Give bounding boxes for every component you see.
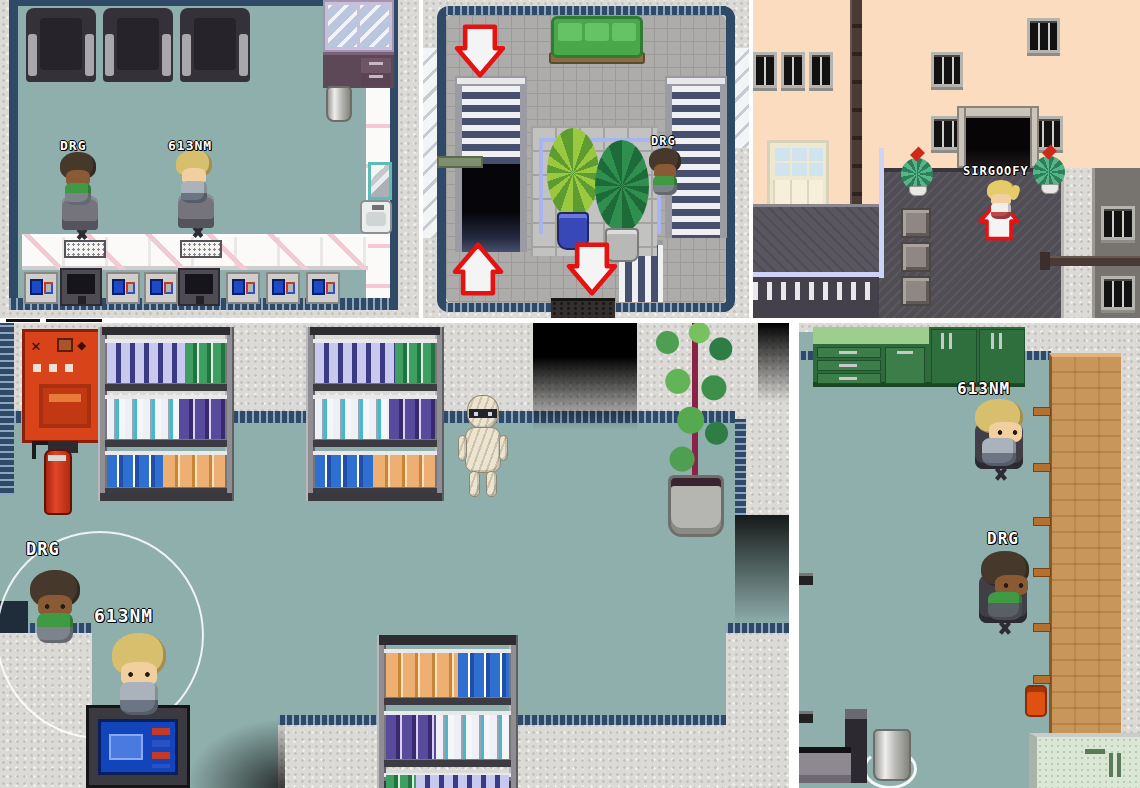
books (386, 775, 416, 788)
player-sirgoofy[interactable] (987, 180, 1015, 220)
doorway[interactable] (966, 118, 1030, 170)
armchair-3 (180, 8, 250, 82)
wall-border (9, 0, 18, 310)
shelf-row (384, 711, 511, 767)
appliance (1029, 733, 1140, 788)
kiosk-screen[interactable] (98, 719, 178, 775)
console-unit (24, 272, 58, 304)
gutter-mark (6, 319, 40, 322)
mummy-body (465, 427, 501, 473)
console-buttons (44, 282, 53, 294)
player-613nm[interactable] (176, 150, 212, 204)
books (107, 399, 179, 439)
extinguisher-band (48, 455, 66, 461)
sofa-cushion (612, 23, 636, 41)
console-screen (232, 279, 245, 295)
books (395, 343, 435, 383)
machine-cap (845, 709, 867, 719)
stone-pillar (1061, 168, 1095, 318)
body (982, 438, 1017, 465)
basin (366, 212, 386, 226)
books (107, 343, 185, 383)
potted-plant (595, 140, 649, 232)
window (1101, 206, 1135, 240)
chair-legs (991, 621, 1015, 635)
books (436, 715, 509, 759)
player-name-label: SIRGOOFY (963, 164, 1029, 178)
console-unit (144, 272, 178, 304)
shelf-base (308, 493, 442, 501)
up-arrow-icon[interactable] (451, 240, 505, 298)
appliance-handle (1109, 753, 1113, 777)
game-screenshot-collage: DRG 613NM (0, 0, 1140, 788)
paneled-door (767, 140, 829, 208)
player-drg[interactable] (649, 148, 681, 196)
railing-posts (753, 282, 879, 300)
body (181, 181, 207, 203)
books (315, 343, 395, 383)
player-name-label: 613NM (957, 379, 1010, 398)
armrest (162, 34, 171, 76)
white-wall (735, 48, 749, 148)
counter-top (813, 327, 929, 344)
armrest (105, 34, 114, 76)
crate (901, 208, 931, 238)
outer-wall (398, 0, 419, 318)
shelf-row (384, 773, 511, 788)
mummy-arm (458, 435, 467, 461)
counter-peg (1033, 568, 1051, 577)
player-name-label: DRG (651, 134, 676, 148)
eyes (1001, 583, 1026, 588)
glass-cabinet (323, 0, 394, 52)
shelf-cap (310, 327, 440, 335)
vending-machine[interactable]: ✕ ◆ (22, 329, 106, 443)
armrest (182, 34, 191, 76)
bookshelf (377, 635, 518, 788)
door-handle (941, 333, 944, 349)
monitor-stand (196, 296, 204, 304)
console-screen (272, 279, 285, 295)
player-name-label: DRG (26, 539, 60, 559)
player-drg[interactable] (981, 551, 1029, 621)
sofa-cushion (558, 23, 582, 41)
player-name-label: 613NM (168, 138, 212, 153)
cabinet-door (979, 329, 1025, 384)
console-unit (106, 272, 140, 304)
books (389, 399, 435, 439)
monitor (178, 268, 220, 306)
window (753, 52, 777, 88)
console-buttons (246, 282, 255, 294)
cabinet-door (931, 329, 977, 384)
monitor-screen (67, 274, 95, 294)
kiosk-buttons (152, 728, 170, 768)
extinguisher-hose (32, 441, 48, 459)
outer-wall (0, 310, 419, 318)
panel-street-entrance: SIRGOOFY (753, 0, 1140, 318)
doorway[interactable] (551, 298, 615, 318)
counter-peg (1033, 675, 1051, 684)
armchair-2 (103, 8, 173, 82)
counter-peg (1033, 517, 1051, 526)
down-arrow-icon[interactable] (565, 240, 619, 298)
white-wall (423, 48, 437, 238)
sink (360, 200, 392, 234)
keyboard (64, 240, 106, 258)
x-dial-icon: ✕ (31, 336, 51, 356)
green-sofa (551, 16, 643, 58)
body (120, 682, 159, 716)
mummy-leg (486, 471, 497, 497)
player-name-label: 613NM (94, 605, 153, 626)
kiosk-window (109, 734, 143, 760)
shelf-row (313, 395, 437, 447)
armrest (28, 34, 37, 76)
mummy-eye (474, 412, 478, 416)
eyes (42, 604, 68, 609)
dispenser-handle (49, 394, 81, 402)
shelf-base (100, 493, 232, 501)
bottom-right-wall (726, 623, 789, 788)
escalator-down[interactable] (455, 86, 527, 164)
drawer-handle (839, 377, 857, 380)
gutter-mark (46, 319, 102, 322)
body (653, 176, 676, 195)
diamond-dial-icon: ◆ (77, 336, 97, 356)
console-buttons (286, 282, 295, 294)
panel-cyber-cafe: DRG 613NM (0, 0, 419, 318)
bookshelf (306, 327, 444, 501)
appliance-dash (1085, 749, 1105, 754)
shelf-row (384, 649, 511, 705)
faucet (372, 205, 384, 210)
shelf-row (105, 395, 227, 447)
books (185, 343, 225, 383)
monitor (60, 268, 102, 306)
books (386, 715, 436, 759)
monitor-screen (185, 274, 213, 294)
panel-counter-office: 613NM DRG (799, 323, 1140, 788)
right-wall (1121, 323, 1140, 735)
monitor-stand (78, 296, 86, 304)
shelf-row (313, 339, 437, 391)
wall-gap (1025, 323, 1121, 353)
crate (901, 276, 931, 306)
mummy-leg (469, 471, 480, 497)
armrest (239, 34, 248, 76)
player-name-label: DRG (987, 529, 1019, 548)
body (991, 203, 1011, 219)
window (1027, 18, 1060, 53)
drawer-handle (839, 351, 857, 354)
outer-wall (0, 0, 9, 318)
console-screen (312, 279, 325, 295)
player-drg[interactable] (60, 152, 96, 206)
pipe-flange (1040, 252, 1050, 270)
console-screen (112, 279, 125, 295)
books (315, 455, 373, 487)
shelf-row (105, 339, 227, 391)
counter-peg (1033, 463, 1051, 472)
player-613nm[interactable] (112, 633, 166, 717)
shelf-cap (379, 635, 516, 645)
plant-pot (668, 475, 724, 537)
trash-can (873, 729, 911, 781)
drain-pipe (850, 0, 862, 214)
books (163, 455, 225, 487)
console-unit (226, 272, 260, 304)
sofa-cushion (585, 23, 609, 41)
plant-pot-white (1041, 184, 1059, 194)
door-handle (897, 351, 913, 354)
mummy-eye (488, 412, 492, 416)
down-arrow-icon[interactable] (453, 22, 507, 80)
console-buttons (326, 282, 335, 294)
roof-wall-face (753, 277, 879, 318)
player-613nm[interactable] (975, 399, 1023, 467)
door-glass (773, 146, 823, 176)
counter-peg (1033, 623, 1051, 632)
body (37, 613, 73, 643)
counter-peg (1033, 407, 1051, 416)
potted-plant (547, 128, 599, 218)
trash-can (326, 86, 352, 122)
corner-shadow (758, 323, 789, 403)
stair-landing (665, 76, 727, 86)
glass-pane (328, 5, 357, 47)
books (386, 653, 458, 697)
player-name-label: DRG (60, 138, 86, 153)
window (1101, 276, 1135, 310)
machine-base (799, 747, 851, 783)
console-buttons (126, 282, 135, 294)
console-buttons (164, 282, 173, 294)
door-handle (999, 333, 1002, 349)
desk-drawers (361, 58, 391, 86)
bookshelf (98, 327, 234, 501)
books (416, 775, 509, 788)
door-lintel (957, 106, 1039, 118)
stair-shaft[interactable] (455, 164, 527, 252)
door-handle (949, 333, 952, 349)
shelf-cap (102, 327, 230, 335)
wall-fixture (799, 573, 813, 585)
door-panels (773, 180, 823, 204)
horizontal-pipe (1040, 256, 1140, 266)
doorway-shadow[interactable] (533, 323, 637, 435)
window (809, 52, 833, 88)
books (107, 455, 163, 487)
coin-box (57, 338, 73, 352)
kitchen-cabinets (813, 327, 1025, 387)
seat-cushion (117, 18, 159, 70)
wall-trim (726, 623, 789, 633)
wall-trim (0, 323, 14, 495)
eyes (995, 430, 1020, 435)
books (458, 653, 509, 697)
drawer-handle (369, 75, 383, 78)
kiosk-shadow (185, 718, 285, 788)
eyes (125, 672, 153, 677)
panel-shop-library: ✕ ◆ (0, 323, 789, 788)
npc-mummy[interactable] (458, 395, 508, 499)
mirror (368, 162, 392, 200)
console-screen (30, 279, 43, 295)
books (179, 399, 225, 439)
body (988, 592, 1023, 620)
desk (323, 52, 394, 88)
window (781, 52, 805, 88)
books (315, 399, 389, 439)
glass-pane (360, 5, 389, 47)
shelf-row (105, 451, 227, 495)
wall-fixture (799, 711, 813, 723)
console-screen (150, 279, 163, 295)
player-drg[interactable] (30, 570, 80, 644)
body (65, 183, 91, 205)
drawer-handle (839, 364, 857, 367)
railing (879, 148, 884, 278)
window (931, 52, 963, 87)
wall-shadow (735, 515, 789, 625)
armrest (85, 34, 94, 76)
mounted-extinguisher (1025, 685, 1047, 717)
door-post (957, 106, 966, 168)
wooden-counter (1049, 353, 1121, 733)
railing (753, 272, 884, 277)
panel-stairwell: DRG (423, 0, 749, 318)
armchair-1 (26, 8, 96, 82)
ledge (437, 156, 483, 168)
dispenser-panel (39, 384, 91, 428)
chair-legs (987, 467, 1011, 481)
drawer-handle (369, 62, 383, 65)
wall-border (446, 6, 726, 15)
appliance-handle (1117, 753, 1121, 777)
tall-plant (652, 323, 738, 485)
door-post (1030, 106, 1039, 168)
seat-cushion (40, 18, 82, 70)
wall-trim (1025, 351, 1051, 360)
display-marks (33, 364, 77, 372)
keyboard (180, 240, 222, 258)
console-unit (306, 272, 340, 304)
console-unit (266, 272, 300, 304)
seat-cushion (194, 18, 236, 70)
fire-extinguisher (44, 449, 72, 515)
door-handle (991, 333, 994, 349)
mummy-arm (499, 435, 508, 461)
plant-pot-white (909, 186, 927, 196)
books (373, 455, 435, 487)
shelf-row (313, 451, 437, 495)
crate (901, 242, 931, 272)
